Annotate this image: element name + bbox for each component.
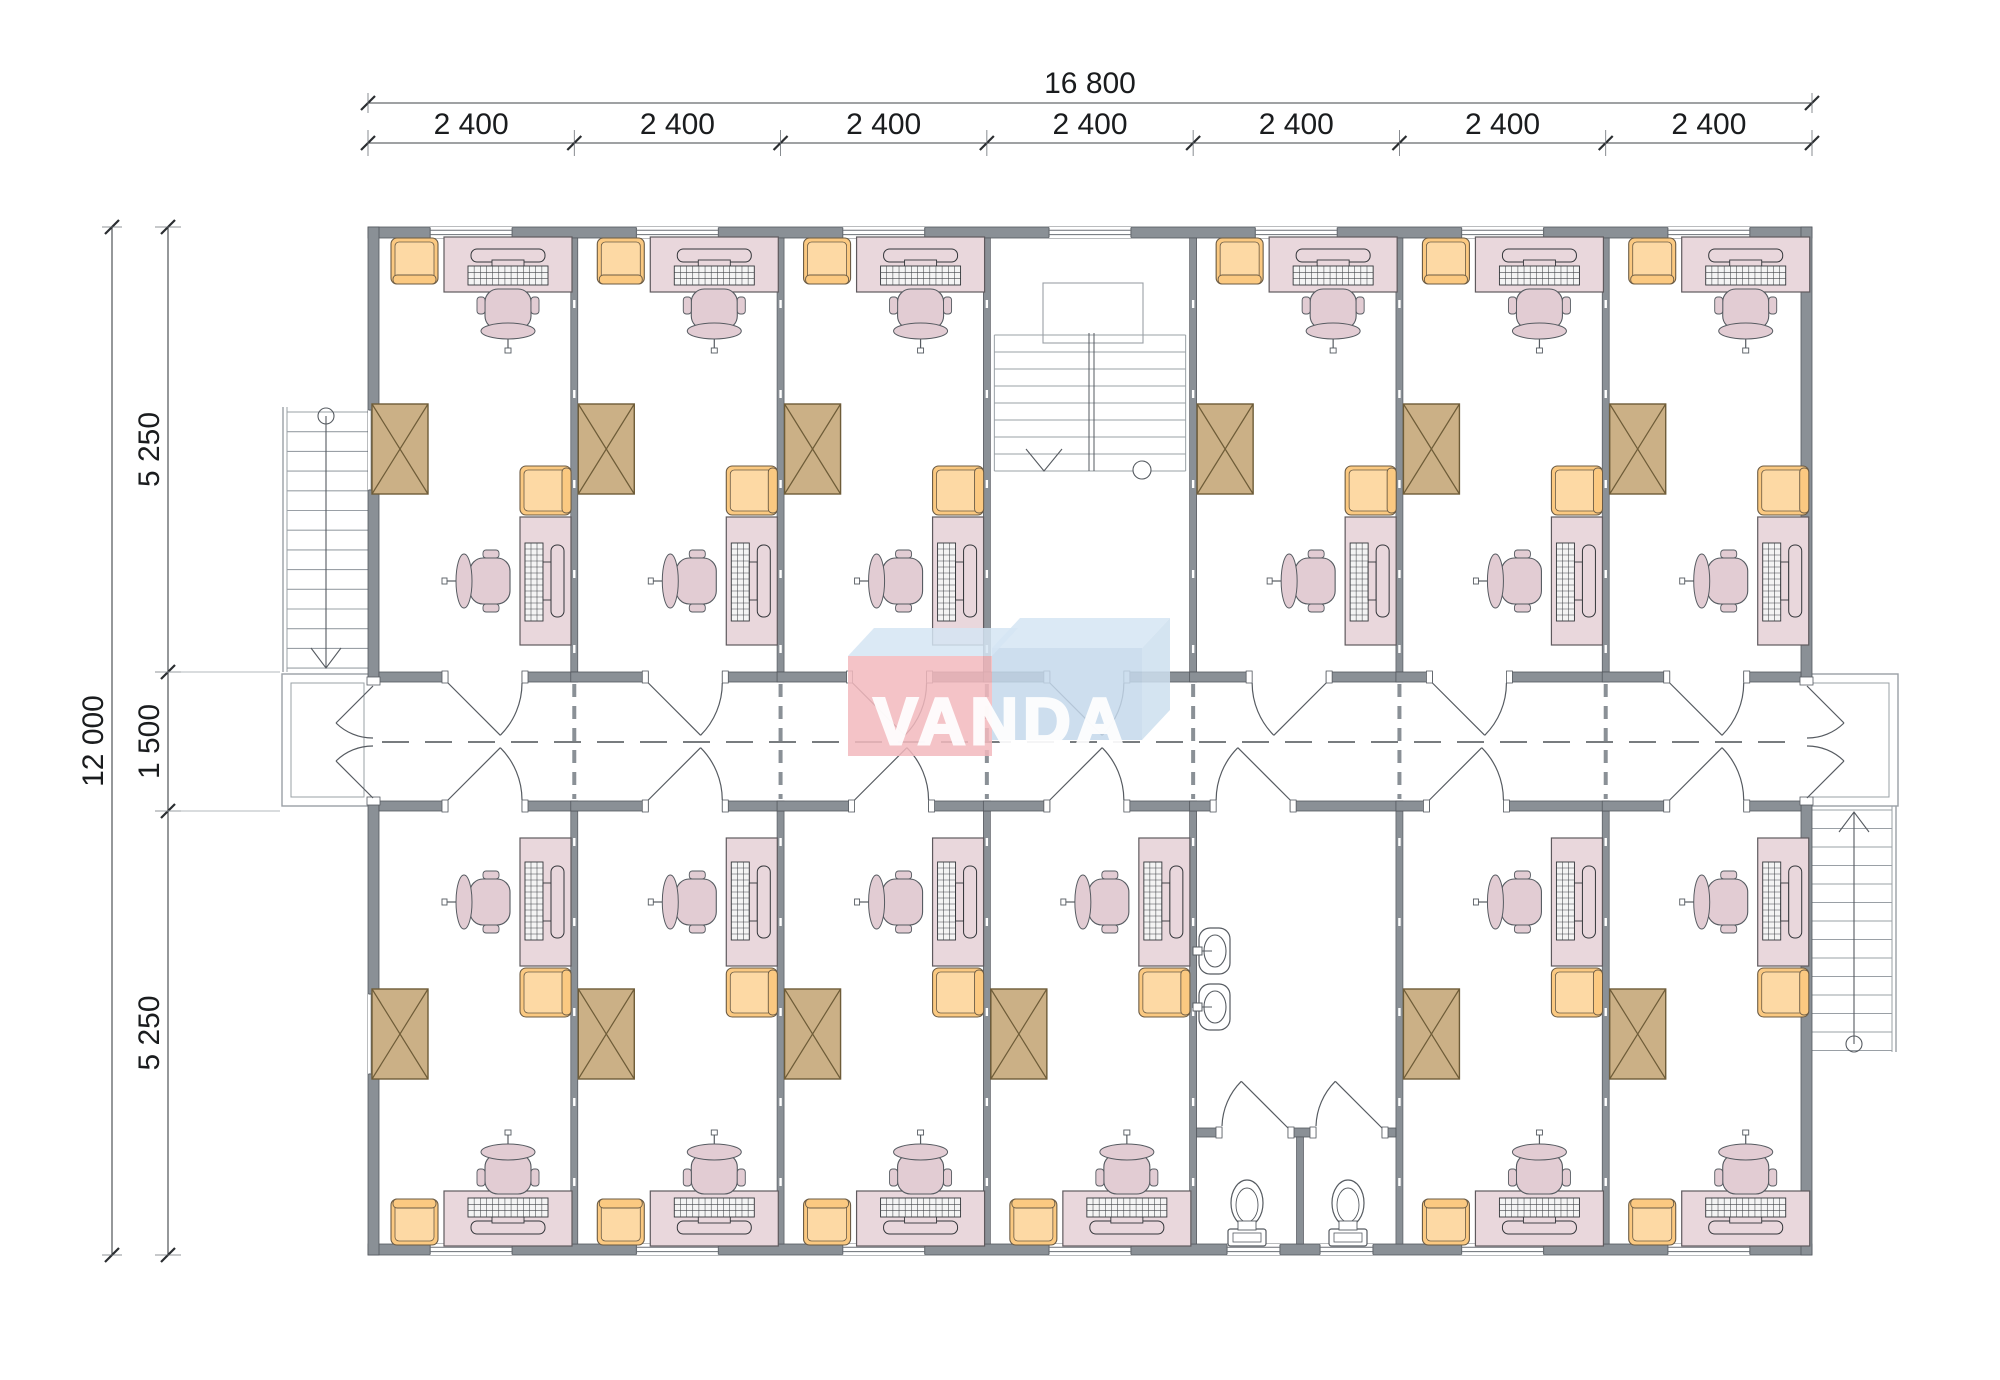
office-chair-icon	[683, 289, 745, 353]
storage-box-icon	[578, 404, 634, 494]
corridor-end-door-west	[336, 677, 380, 805]
armchair-icon	[1345, 466, 1396, 515]
keyboard-icon	[1556, 543, 1574, 621]
office-chair-icon	[890, 289, 952, 353]
dim-bay-width: 2 400	[1052, 108, 1127, 141]
toilet-icon	[1228, 1180, 1266, 1246]
office-chair-icon	[1508, 1130, 1570, 1194]
armchair-icon	[391, 238, 438, 284]
door-top-bay2	[648, 683, 722, 735]
keyboard-icon	[1763, 543, 1781, 621]
window-icon	[1255, 227, 1337, 238]
armchair-icon	[1758, 968, 1809, 1017]
dim-height-segment: 5 250	[133, 995, 166, 1070]
logo-text: VANDA	[874, 684, 1129, 758]
window-icon	[636, 227, 718, 238]
dim-bay-width: 2 400	[1671, 108, 1746, 141]
keyboard-icon	[1763, 862, 1781, 940]
office-chair-icon	[1508, 289, 1570, 353]
office-chair-icon	[1680, 550, 1748, 612]
office-chair-icon	[683, 1130, 745, 1194]
storage-box-icon	[1197, 404, 1253, 494]
storage-box-icon	[1610, 989, 1666, 1079]
keyboard-icon	[881, 1198, 961, 1217]
office-chair-icon	[1715, 1130, 1777, 1194]
door-top-bay7	[1670, 683, 1744, 735]
dim-bay-width: 2 400	[1465, 108, 1540, 141]
door-top-bay5	[1252, 683, 1326, 735]
armchair-icon	[391, 1199, 438, 1245]
office-chair-icon	[890, 1130, 952, 1194]
office-chair-icon	[442, 871, 510, 933]
armchair-icon	[520, 968, 571, 1017]
armchair-icon	[1216, 238, 1263, 284]
dim-bay-width: 2 400	[434, 108, 509, 141]
office-chair-icon	[1096, 1130, 1158, 1194]
keyboard-icon	[731, 543, 749, 621]
toilet-icon	[1329, 1180, 1367, 1246]
office-chair-icon	[1267, 550, 1335, 612]
storage-box-icon	[372, 404, 428, 494]
office-chair-icon	[1680, 871, 1748, 933]
dim-bay-width: 2 400	[640, 108, 715, 141]
door-top-bay1	[448, 683, 522, 735]
room-bottom-bay6-furniture	[1403, 838, 1603, 1246]
keyboard-icon	[1499, 266, 1579, 285]
door-bottom-bay5	[1216, 748, 1290, 800]
interior-stairwell	[994, 283, 1185, 479]
office-chair-icon	[1473, 871, 1541, 933]
armchair-icon	[1010, 1199, 1057, 1245]
armchair-icon	[1422, 1199, 1469, 1245]
office-chair-icon	[477, 1130, 539, 1194]
storage-box-icon	[785, 989, 841, 1079]
armchair-icon	[597, 238, 644, 284]
armchair-icon	[1551, 968, 1602, 1017]
keyboard-icon	[525, 543, 543, 621]
office-chair-icon	[855, 871, 923, 933]
office-chair-icon	[648, 871, 716, 933]
keyboard-icon	[1293, 266, 1373, 285]
corridor-end-door-east	[1800, 677, 1844, 805]
room-bottom-bay1-furniture	[372, 838, 572, 1246]
office-chair-icon	[648, 550, 716, 612]
dim-bay-width: 2 400	[846, 108, 921, 141]
keyboard-icon	[881, 266, 961, 285]
keyboard-icon	[1144, 862, 1162, 940]
room-top-bay7-furniture	[1610, 237, 1810, 645]
window-icon	[1668, 227, 1750, 238]
window-icon	[1462, 227, 1544, 238]
dim-total-width: 16 800	[1044, 67, 1136, 100]
armchair-icon	[1758, 466, 1809, 515]
washroom	[1193, 928, 1396, 1246]
dim-height-segment: 5 250	[133, 412, 166, 487]
dim-height-segment: 1 500	[133, 704, 166, 779]
door-bottom-bay1	[448, 748, 522, 800]
room-bottom-bay4-furniture	[991, 838, 1191, 1246]
office-chair-icon	[1473, 550, 1541, 612]
storage-box-icon	[372, 989, 428, 1079]
keyboard-icon	[938, 862, 956, 940]
office-chair-icon	[477, 289, 539, 353]
armchair-icon	[520, 466, 571, 515]
window-icon	[1049, 227, 1131, 238]
keyboard-icon	[1350, 543, 1368, 621]
door-top-bay6	[1432, 683, 1506, 735]
storage-box-icon	[1610, 404, 1666, 494]
keyboard-icon	[1706, 266, 1786, 285]
storage-box-icon	[991, 989, 1047, 1079]
room-top-bay5-furniture	[1197, 237, 1397, 645]
keyboard-icon	[468, 1198, 548, 1217]
room-bottom-bay7-furniture	[1610, 838, 1810, 1246]
floor-plan-page: 16 8002 4002 4002 4002 4002 4002 4002 40…	[0, 0, 2000, 1380]
exterior-stair-west	[282, 407, 372, 806]
keyboard-icon	[525, 862, 543, 940]
keyboard-icon	[1499, 1198, 1579, 1217]
sink-icon	[1193, 928, 1230, 974]
keyboard-icon	[468, 266, 548, 285]
keyboard-icon	[938, 543, 956, 621]
logo-top-face	[992, 618, 1170, 648]
armchair-icon	[933, 968, 984, 1017]
storage-box-icon	[785, 404, 841, 494]
armchair-icon	[933, 466, 984, 515]
office-chair-icon	[1715, 289, 1777, 353]
armchair-icon	[1139, 968, 1190, 1017]
door-bottom-bay7	[1670, 748, 1744, 800]
keyboard-icon	[674, 266, 754, 285]
storage-box-icon	[578, 989, 634, 1079]
storage-box-icon	[1403, 404, 1459, 494]
room-top-bay2-furniture	[578, 237, 778, 645]
vanda-logo: VANDA	[848, 618, 1170, 758]
room-top-bay1-furniture	[372, 237, 572, 645]
armchair-icon	[1629, 238, 1676, 284]
armchair-icon	[1551, 466, 1602, 515]
keyboard-icon	[1087, 1198, 1167, 1217]
office-chair-icon	[1302, 289, 1364, 353]
armchair-icon	[726, 968, 777, 1017]
room-top-bay3-furniture	[785, 237, 985, 645]
keyboard-icon	[1556, 862, 1574, 940]
floor-plan: 16 8002 4002 4002 4002 4002 4002 4002 40…	[0, 0, 2000, 1380]
logo-top-face	[848, 628, 1018, 656]
keyboard-icon	[1706, 1198, 1786, 1217]
keyboard-icon	[731, 862, 749, 940]
door-bottom-bay2	[648, 748, 722, 800]
armchair-icon	[726, 466, 777, 515]
armchair-icon	[804, 238, 851, 284]
armchair-icon	[1629, 1199, 1676, 1245]
keyboard-icon	[674, 1198, 754, 1217]
armchair-icon	[804, 1199, 851, 1245]
room-top-bay6-furniture	[1403, 237, 1603, 645]
room-bottom-bay2-furniture	[578, 838, 778, 1246]
exterior-stair-east	[1808, 674, 1898, 1052]
sink-icon	[1193, 984, 1230, 1030]
dim-bay-width: 2 400	[1259, 108, 1334, 141]
window-icon	[430, 227, 512, 238]
office-chair-icon	[1061, 871, 1129, 933]
room-bottom-bay3-furniture	[785, 838, 985, 1246]
office-chair-icon	[855, 550, 923, 612]
dim-total-height: 12 000	[77, 695, 110, 787]
window-icon	[843, 227, 925, 238]
door-bottom-bay6	[1429, 748, 1503, 800]
office-chair-icon	[442, 550, 510, 612]
armchair-icon	[597, 1199, 644, 1245]
armchair-icon	[1422, 238, 1469, 284]
storage-box-icon	[1403, 989, 1459, 1079]
